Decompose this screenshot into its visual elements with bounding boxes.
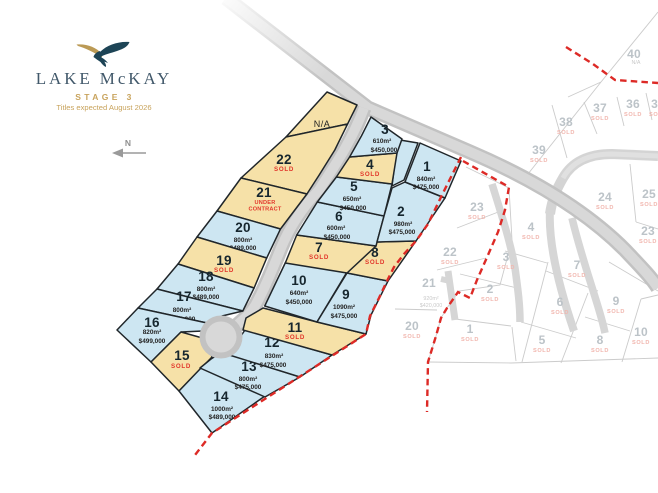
svg-text:920m²: 920m² (423, 296, 438, 302)
svg-text:640m²: 640m² (290, 290, 308, 297)
svg-text:SOLD: SOLD (568, 273, 586, 279)
svg-text:SOLD: SOLD (461, 337, 479, 343)
svg-text:$475,000: $475,000 (260, 362, 287, 369)
svg-text:39: 39 (532, 143, 546, 157)
svg-text:25: 25 (642, 187, 656, 201)
svg-text:4: 4 (366, 157, 374, 172)
svg-text:$450,000: $450,000 (286, 299, 313, 306)
svg-text:22: 22 (276, 152, 291, 167)
svg-text:10: 10 (634, 325, 648, 339)
svg-text:38: 38 (559, 115, 573, 129)
svg-text:980m²: 980m² (394, 221, 412, 228)
svg-text:SOLD: SOLD (530, 158, 548, 164)
svg-text:SOLD: SOLD (522, 235, 540, 241)
svg-text:SOLD: SOLD (607, 309, 625, 315)
svg-text:19: 19 (216, 253, 231, 268)
svg-text:SOLD: SOLD (360, 171, 380, 178)
svg-text:$475,000: $475,000 (413, 184, 440, 191)
svg-text:4: 4 (528, 220, 535, 234)
svg-text:$475,000: $475,000 (331, 313, 358, 320)
svg-text:23: 23 (641, 224, 655, 238)
svg-text:$450,000: $450,000 (324, 234, 351, 241)
svg-text:7: 7 (574, 258, 581, 272)
svg-text:SOLD: SOLD (591, 348, 609, 354)
svg-text:40: 40 (627, 47, 641, 61)
svg-text:SOLD: SOLD (649, 112, 658, 118)
svg-text:10: 10 (291, 273, 306, 288)
svg-text:SOLD: SOLD (214, 267, 234, 274)
svg-text:830m²: 830m² (265, 353, 283, 360)
svg-text:800m²: 800m² (197, 286, 215, 293)
svg-text:SOLD: SOLD (365, 259, 385, 266)
svg-text:5: 5 (350, 179, 358, 194)
svg-text:LAKE McKAY: LAKE McKAY (36, 69, 173, 88)
svg-text:SOLD: SOLD (596, 205, 614, 211)
svg-text:21: 21 (422, 276, 436, 290)
svg-text:1: 1 (423, 159, 431, 174)
svg-text:SOLD: SOLD (497, 265, 515, 271)
svg-text:14: 14 (213, 389, 229, 404)
svg-text:3: 3 (503, 250, 510, 264)
svg-text:2: 2 (397, 204, 405, 219)
svg-text:36: 36 (626, 97, 640, 111)
svg-text:SOLD: SOLD (557, 130, 575, 136)
svg-text:18: 18 (198, 269, 214, 284)
svg-text:$450,000: $450,000 (340, 205, 367, 212)
svg-text:16: 16 (144, 315, 160, 330)
svg-text:8: 8 (597, 333, 604, 347)
svg-text:35: 35 (651, 97, 658, 111)
svg-text:SOLD: SOLD (591, 116, 609, 122)
svg-text:820m²: 820m² (143, 329, 161, 336)
svg-text:N/A: N/A (632, 60, 641, 66)
svg-text:CONTRACT: CONTRACT (249, 207, 282, 213)
svg-text:22: 22 (443, 245, 457, 259)
svg-text:9: 9 (342, 287, 350, 302)
svg-text:STAGE 3: STAGE 3 (75, 92, 135, 102)
svg-text:N: N (125, 138, 131, 148)
svg-text:2: 2 (487, 282, 494, 296)
svg-text:SOLD: SOLD (481, 297, 499, 303)
svg-text:600m²: 600m² (327, 225, 345, 232)
svg-text:SOLD: SOLD (640, 202, 658, 208)
svg-text:Titles expected August 2026: Titles expected August 2026 (56, 103, 151, 112)
svg-text:800m²: 800m² (234, 237, 252, 244)
svg-text:6: 6 (557, 295, 564, 309)
svg-text:20: 20 (405, 319, 419, 333)
svg-text:SOLD: SOLD (468, 215, 486, 221)
svg-text:SOLD: SOLD (274, 166, 294, 173)
svg-text:1090m²: 1090m² (333, 304, 355, 311)
svg-text:UNDER: UNDER (255, 200, 276, 206)
svg-text:$475,000: $475,000 (235, 384, 262, 391)
svg-text:SOLD: SOLD (533, 348, 551, 354)
svg-text:15: 15 (174, 348, 190, 363)
svg-text:$499,000: $499,000 (139, 338, 166, 345)
svg-text:20: 20 (235, 220, 250, 235)
svg-text:$475,000: $475,000 (389, 229, 416, 236)
svg-text:610m²: 610m² (373, 138, 391, 145)
svg-text:SOLD: SOLD (441, 260, 459, 266)
svg-text:17: 17 (176, 289, 191, 304)
svg-text:SOLD: SOLD (171, 363, 191, 370)
svg-text:840m²: 840m² (417, 176, 435, 183)
svg-text:7: 7 (315, 240, 323, 255)
svg-text:37: 37 (593, 101, 607, 115)
svg-text:SOLD: SOLD (639, 239, 657, 245)
svg-text:SOLD: SOLD (632, 340, 650, 346)
svg-text:650m²: 650m² (343, 196, 361, 203)
svg-text:9: 9 (613, 294, 620, 308)
svg-text:5: 5 (539, 333, 546, 347)
svg-text:3: 3 (381, 122, 389, 137)
svg-text:$450,000: $450,000 (371, 147, 398, 154)
svg-text:SOLD: SOLD (551, 310, 569, 316)
svg-text:SOLD: SOLD (403, 334, 421, 340)
svg-text:21: 21 (256, 185, 272, 200)
svg-text:SOLD: SOLD (285, 334, 305, 341)
svg-text:23: 23 (470, 200, 484, 214)
svg-text:24: 24 (598, 190, 612, 204)
svg-text:11: 11 (288, 320, 303, 335)
svg-text:$420,000: $420,000 (420, 303, 442, 309)
svg-text:SOLD: SOLD (309, 254, 329, 261)
svg-text:SOLD: SOLD (624, 112, 642, 118)
svg-text:800m²: 800m² (173, 307, 191, 314)
svg-text:$489,000: $489,000 (209, 414, 236, 421)
svg-text:1000m²: 1000m² (211, 406, 233, 413)
svg-text:800m²: 800m² (239, 376, 257, 383)
svg-text:1: 1 (467, 322, 474, 336)
